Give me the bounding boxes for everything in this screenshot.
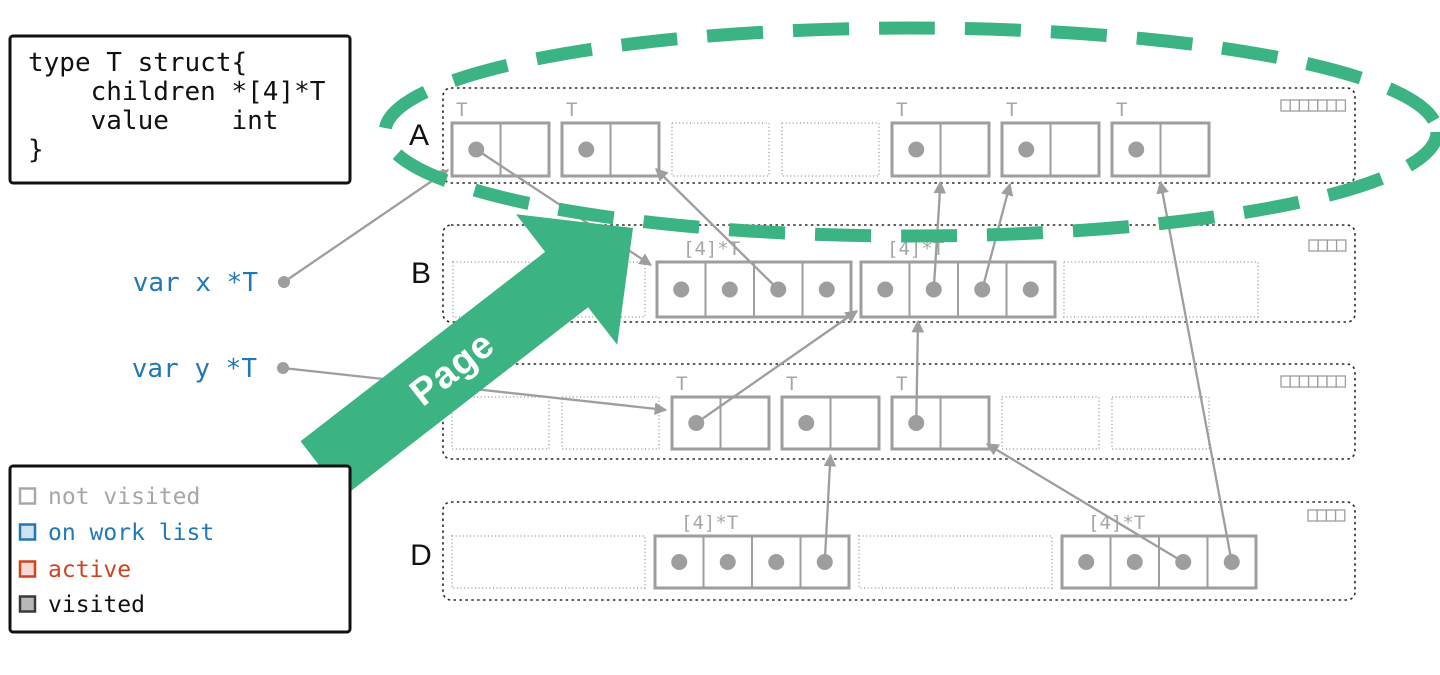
mark-bit (1281, 100, 1290, 111)
heap-object-D-1: [4]*T (655, 512, 849, 588)
type-label: T (786, 373, 797, 395)
heap-object-A-1: T (562, 99, 659, 176)
mark-bit (1326, 510, 1335, 521)
code-line: type T struct{ (28, 48, 247, 78)
legend-swatch-icon (20, 562, 35, 577)
type-label: T (566, 99, 577, 121)
mark-bit (1299, 100, 1308, 111)
page-label-D: D (410, 539, 432, 572)
type-label: [4]*T (681, 512, 738, 534)
legend-label: active (48, 557, 131, 583)
heap-page-A: ATTTTT (409, 88, 1355, 183)
heap-page-C: TTT (443, 364, 1355, 459)
mark-bit (1327, 100, 1336, 111)
mark-bits-B (1309, 240, 1346, 251)
pointer-dot (1018, 142, 1034, 158)
mark-bits-D (1308, 510, 1345, 521)
mark-bit (1309, 376, 1318, 387)
mark-bit (1309, 100, 1318, 111)
pointer-dot (722, 282, 738, 298)
free-slot (1002, 397, 1099, 449)
mark-bit (1290, 376, 1299, 387)
page-label-A: A (409, 119, 429, 152)
type-label: T (1116, 99, 1127, 121)
mark-bit (1327, 376, 1336, 387)
heap-object-B-2: [4]*T (861, 238, 1055, 317)
pointer-arrow (1161, 182, 1232, 562)
type-label: T (456, 99, 467, 121)
pointer-dot (673, 282, 689, 298)
pointer-dot (1023, 282, 1039, 298)
mark-bit (1327, 240, 1336, 251)
pointer-dot (1128, 142, 1144, 158)
mark-bit (1318, 100, 1327, 111)
mark-bit (1337, 240, 1346, 251)
mark-bit (1336, 100, 1345, 111)
mark-bit (1317, 510, 1326, 521)
code-line: children *[4]*T (28, 77, 326, 107)
free-slot (672, 123, 769, 176)
free-slot (1064, 262, 1258, 317)
pointer-dot (671, 554, 687, 570)
pointer-dot (578, 142, 594, 158)
heap-object-B-1: [4]*T (657, 238, 851, 317)
mark-bit (1290, 100, 1299, 111)
free-slot (1112, 397, 1209, 449)
legend-swatch-icon (20, 489, 35, 504)
type-label: T (896, 373, 907, 395)
heap-object-A-6: T (1112, 99, 1209, 176)
pointer-dot (768, 554, 784, 570)
pointer-dot (819, 282, 835, 298)
legend-swatch-icon (20, 597, 35, 612)
mark-bit (1299, 376, 1308, 387)
pointer-dot (908, 142, 924, 158)
pointer-dot (1078, 554, 1094, 570)
heap-object-A-5: T (1002, 99, 1099, 176)
free-slot (452, 536, 645, 588)
pointer-dot (720, 554, 736, 570)
gc-heap-diagram: ATTTTTB[4]*T[4]*TTTTD[4]*T[4]*T var x *T… (0, 0, 1440, 675)
heap-pages-layer: ATTTTTB[4]*T[4]*TTTTD[4]*T[4]*T (409, 88, 1355, 600)
root-pointer-dot (278, 276, 290, 288)
type-label: T (676, 373, 687, 395)
heap-page-D: D[4]*T[4]*T (410, 502, 1355, 600)
legend-item: on work list (20, 520, 214, 546)
mark-bit (1309, 240, 1318, 251)
legend-label: not visited (48, 484, 200, 510)
page-label-B: B (411, 257, 431, 290)
free-slot (452, 397, 549, 449)
mark-bit (1281, 376, 1290, 387)
type-label: T (1006, 99, 1017, 121)
legend-label: visited (48, 592, 145, 618)
pointer-dot (1127, 554, 1143, 570)
root-var-label-x: var x *T (133, 268, 259, 298)
legend-swatch-icon (20, 525, 35, 540)
heap-object-D-3: [4]*T (1062, 512, 1256, 588)
legend-label: on work list (48, 520, 214, 546)
type-label: T (896, 99, 907, 121)
mark-bit (1336, 510, 1345, 521)
heap-object-C-2: T (672, 373, 769, 449)
mark-bits-C (1281, 376, 1345, 387)
code-box: type T struct{ children *[4]*T value int… (10, 36, 350, 183)
heap-object-C-4: T (892, 373, 989, 449)
mark-bits-A (1281, 100, 1345, 111)
root-vars-layer: var x *Tvar y *T (132, 268, 290, 384)
code-line: value int (28, 106, 278, 136)
heap-object-C-3: T (782, 373, 879, 449)
legend: not visitedon work listactivevisited (10, 466, 350, 632)
diagram-stage: ATTTTTB[4]*T[4]*TTTTD[4]*T[4]*T var x *T… (0, 0, 1440, 675)
pointer-dot (798, 415, 814, 431)
pointer-dot (877, 282, 893, 298)
mark-bit (1308, 510, 1317, 521)
legend-item: not visited (20, 484, 200, 510)
free-slot (859, 536, 1052, 588)
mark-bit (1318, 240, 1327, 251)
heap-object-A-4: T (892, 99, 989, 176)
free-slot (782, 123, 879, 176)
mark-bit (1318, 376, 1327, 387)
root-pointer-dot (277, 362, 289, 374)
root-var-x: var x *T (133, 268, 290, 298)
type-label: [4]*T (683, 238, 740, 260)
root-var-label-y: var y *T (132, 354, 258, 384)
code-line: } (28, 135, 44, 165)
root-var-y: var y *T (132, 354, 289, 384)
mark-bit (1336, 376, 1345, 387)
